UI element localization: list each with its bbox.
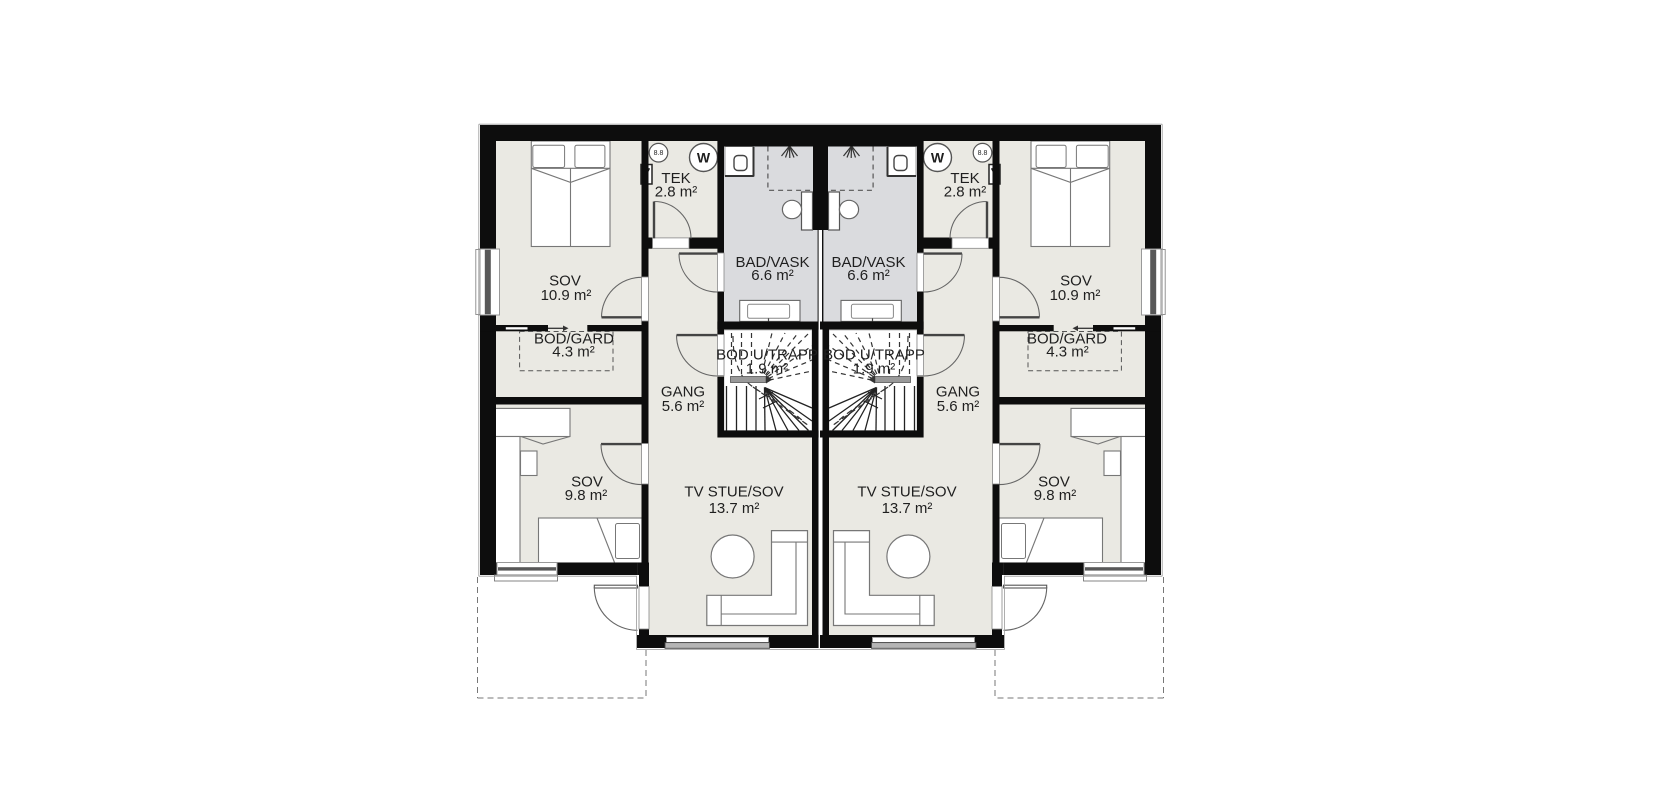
svg-text:TV STUE/SOV: TV STUE/SOV (684, 484, 783, 501)
svg-text:TV STUE/SOV: TV STUE/SOV (857, 484, 956, 501)
svg-text:W: W (931, 150, 945, 166)
svg-text:1.9 m²: 1.9 m² (746, 361, 789, 378)
svg-text:6.6 m²: 6.6 m² (751, 267, 794, 284)
svg-text:8.8: 8.8 (978, 150, 988, 157)
svg-text:4.3 m²: 4.3 m² (552, 344, 595, 361)
svg-text:8.8: 8.8 (654, 150, 664, 157)
svg-text:6.6 m²: 6.6 m² (847, 267, 890, 284)
svg-text:2.8 m²: 2.8 m² (655, 184, 698, 201)
svg-text:5.6 m²: 5.6 m² (662, 398, 705, 415)
svg-text:W: W (697, 150, 711, 166)
svg-text:9.8 m²: 9.8 m² (1034, 487, 1077, 504)
svg-text:13.7 m²: 13.7 m² (882, 500, 933, 517)
svg-text:2.8 m²: 2.8 m² (944, 184, 987, 201)
svg-text:1.9 m²: 1.9 m² (853, 361, 896, 378)
svg-text:13.7 m²: 13.7 m² (709, 500, 760, 517)
svg-text:10.9 m²: 10.9 m² (1050, 287, 1101, 304)
svg-text:10.9 m²: 10.9 m² (541, 287, 592, 304)
svg-text:9.8 m²: 9.8 m² (565, 487, 608, 504)
svg-text:4.3 m²: 4.3 m² (1046, 344, 1089, 361)
svg-text:5.6 m²: 5.6 m² (937, 398, 980, 415)
